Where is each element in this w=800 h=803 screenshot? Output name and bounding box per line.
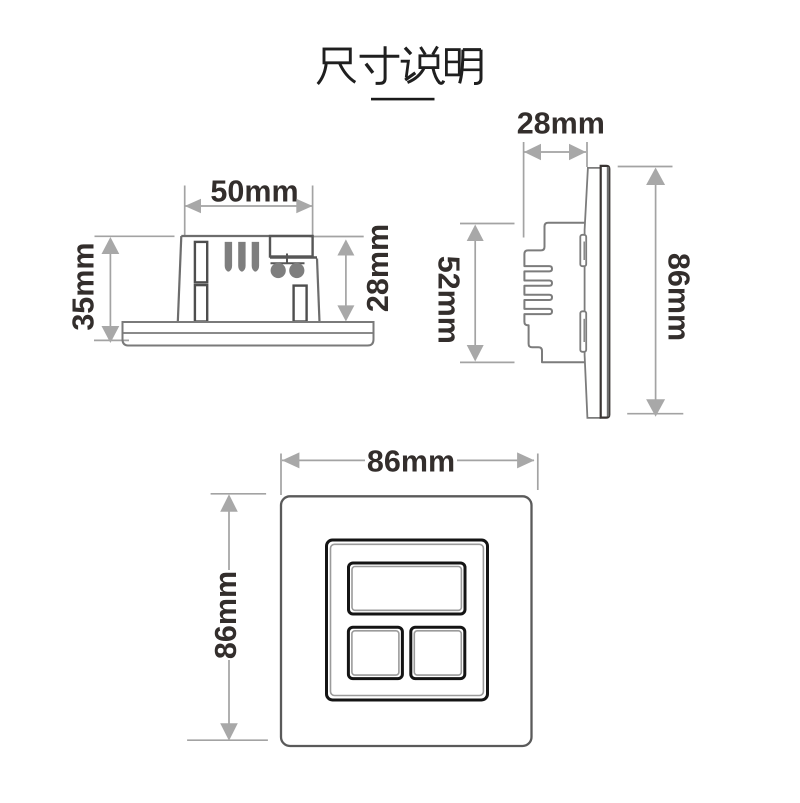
svg-text:28mm: 28mm	[517, 107, 605, 141]
svg-text:35mm: 35mm	[67, 243, 101, 331]
svg-text:28mm: 28mm	[361, 224, 395, 312]
svg-text:86mm: 86mm	[367, 444, 455, 478]
svg-text:86mm: 86mm	[209, 571, 243, 659]
svg-text:50mm: 50mm	[210, 174, 298, 208]
svg-text:52mm: 52mm	[432, 256, 466, 344]
svg-text:86mm: 86mm	[661, 253, 695, 341]
